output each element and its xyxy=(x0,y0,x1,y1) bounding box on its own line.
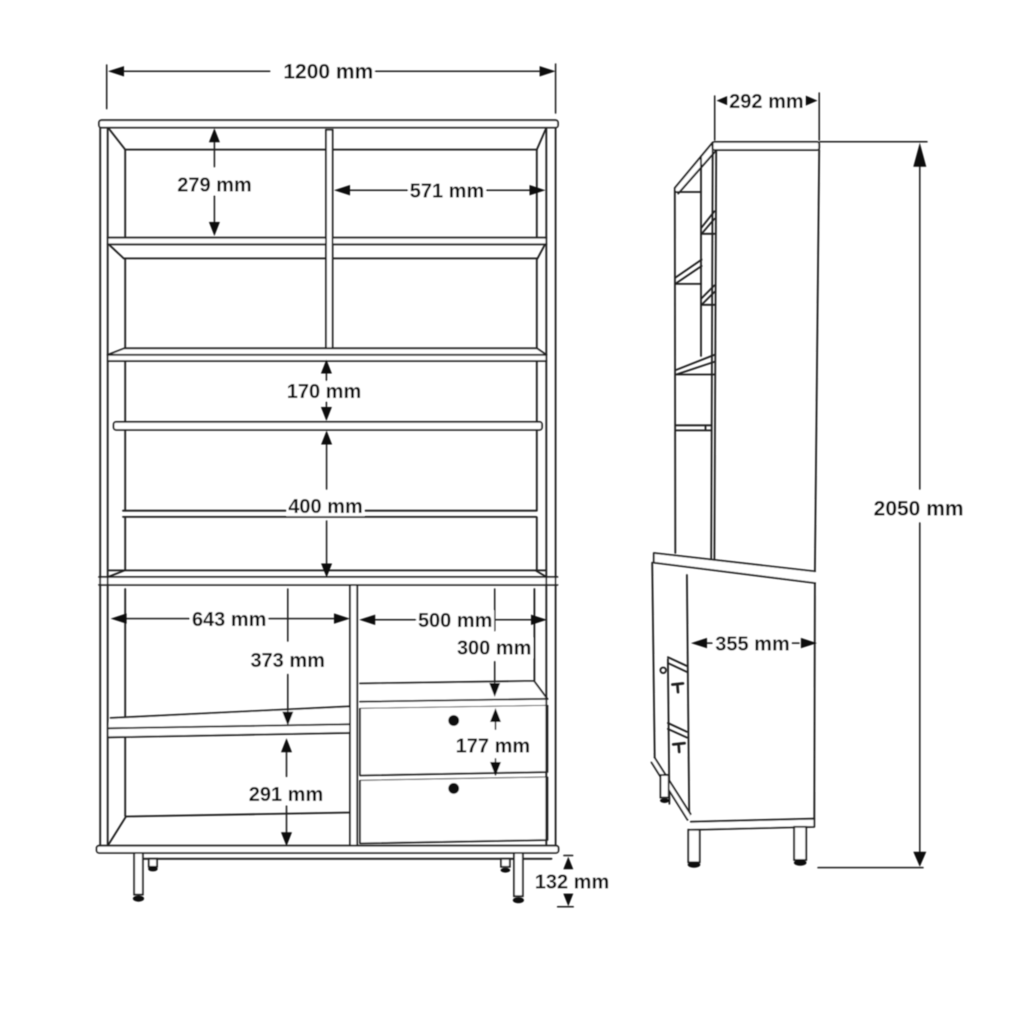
svg-text:643 mm: 643 mm xyxy=(192,609,267,631)
svg-text:177 mm: 177 mm xyxy=(456,735,531,757)
svg-text:292 mm: 292 mm xyxy=(729,91,804,113)
svg-text:279 mm: 279 mm xyxy=(177,174,252,196)
svg-text:500 mm: 500 mm xyxy=(418,610,493,632)
svg-text:132 mm: 132 mm xyxy=(535,872,610,894)
svg-text:355 mm: 355 mm xyxy=(715,633,790,655)
svg-text:2050 mm: 2050 mm xyxy=(874,497,964,520)
svg-text:571 mm: 571 mm xyxy=(410,181,485,203)
svg-text:291 mm: 291 mm xyxy=(249,784,324,806)
svg-text:400 mm: 400 mm xyxy=(288,496,363,518)
svg-text:373 mm: 373 mm xyxy=(250,650,325,672)
svg-text:1200 mm: 1200 mm xyxy=(283,61,373,84)
svg-text:170 mm: 170 mm xyxy=(287,381,362,403)
svg-text:300 mm: 300 mm xyxy=(457,638,532,660)
